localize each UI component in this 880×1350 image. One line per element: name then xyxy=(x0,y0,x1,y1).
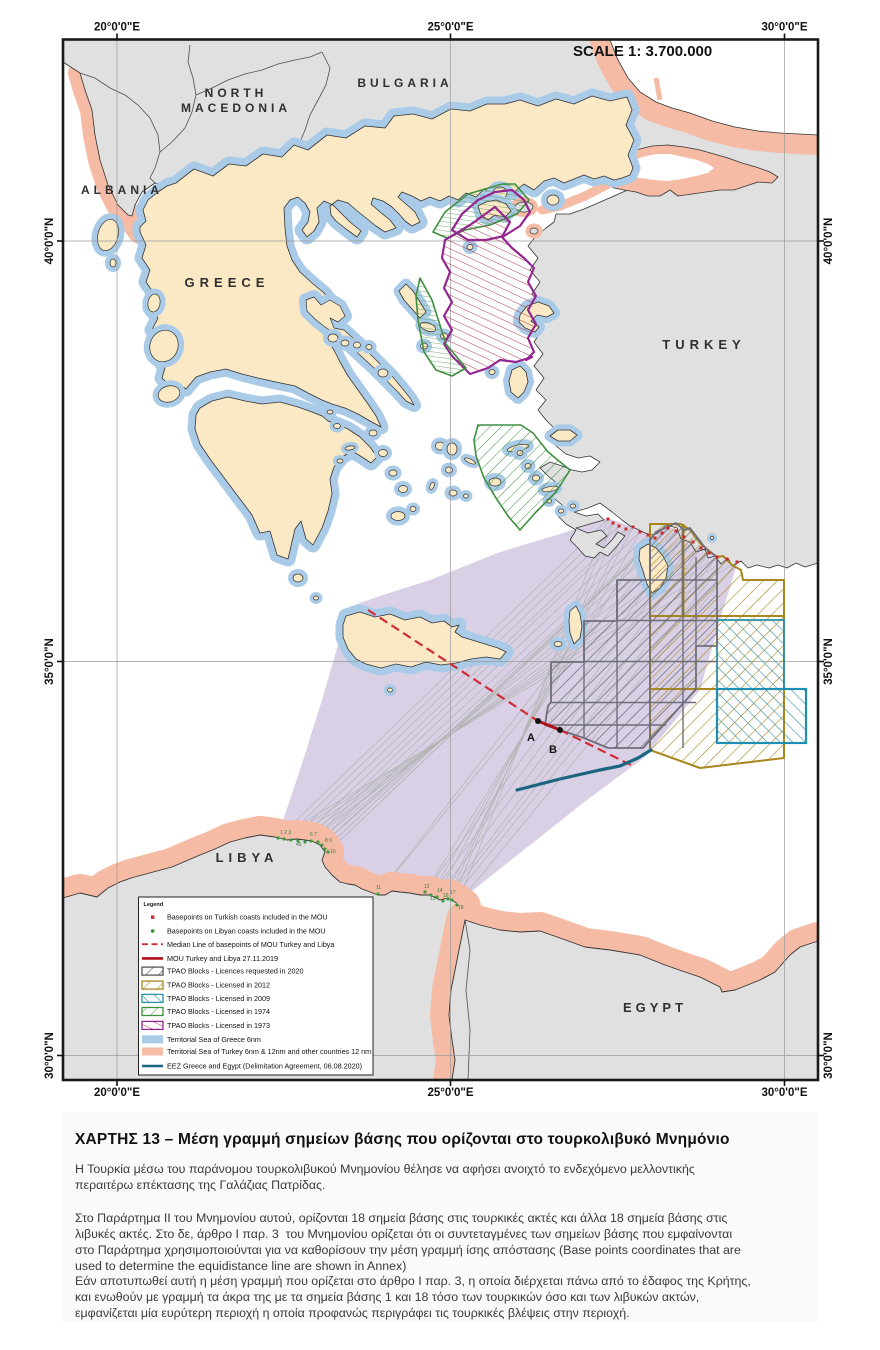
svg-text:20°0'0"E: 20°0'0"E xyxy=(94,1087,140,1099)
svg-text:GREECE: GREECE xyxy=(185,275,270,290)
svg-text:20°0'0"E: 20°0'0"E xyxy=(94,22,140,34)
svg-text:1 2 3: 1 2 3 xyxy=(280,830,291,836)
svg-text:25°0'0"E: 25°0'0"E xyxy=(427,1087,473,1099)
svg-text:30°0'0"E: 30°0'0"E xyxy=(761,1087,807,1099)
svg-text:TPAO Blocks - Licensed in 1973: TPAO Blocks - Licensed in 1973 xyxy=(167,1021,270,1030)
svg-text:SCALE 1: 3.700.000: SCALE 1: 3.700.000 xyxy=(573,43,712,60)
svg-text:14: 14 xyxy=(437,888,443,894)
svg-text:TPAO Blocks - Licensed in 2012: TPAO Blocks - Licensed in 2012 xyxy=(167,981,270,990)
svg-text:8 9: 8 9 xyxy=(325,838,332,844)
svg-text:Basepoints on Libyan coasts in: Basepoints on Libyan coasts included in … xyxy=(167,927,326,936)
svg-text:30°0'0"E: 30°0'0"E xyxy=(761,22,807,34)
svg-text:EEZ Greece and Egypt (Delimita: EEZ Greece and Egypt (Delimitation Agree… xyxy=(167,1062,362,1071)
svg-text:35°0'0"N: 35°0'0"N xyxy=(823,638,835,685)
svg-text:Median Line of basepoints of M: Median Line of basepoints of MOU Turkey … xyxy=(167,940,334,949)
svg-text:BULGARIA: BULGARIA xyxy=(357,76,452,90)
svg-text:MOU Turkey and Libya 27.11.201: MOU Turkey and Libya 27.11.2019 xyxy=(167,954,278,963)
svg-text:13: 13 xyxy=(430,896,436,902)
svg-text:LIBYA: LIBYA xyxy=(216,850,279,865)
svg-text:17: 17 xyxy=(450,890,456,896)
svg-text:TURKEY: TURKEY xyxy=(662,337,745,352)
svg-text:ALBANIA: ALBANIA xyxy=(81,183,163,197)
svg-text:40°0'0"N: 40°0'0"N xyxy=(823,218,835,265)
svg-text:30°0'0"N: 30°0'0"N xyxy=(823,1032,835,1079)
svg-text:EGYPT: EGYPT xyxy=(623,1000,687,1015)
svg-text:10: 10 xyxy=(330,849,336,855)
svg-text:Basepoints on Turkish coasts i: Basepoints on Turkish coasts included in… xyxy=(167,913,328,922)
svg-text:25°0'0"E: 25°0'0"E xyxy=(427,22,473,34)
svg-text:B: B xyxy=(549,744,557,756)
svg-text:18: 18 xyxy=(458,905,464,911)
svg-text:12: 12 xyxy=(424,884,430,890)
svg-text:35°0'0"N: 35°0'0"N xyxy=(44,638,56,685)
svg-text:TPAO Blocks - Licensed in 2009: TPAO Blocks - Licensed in 2009 xyxy=(167,994,270,1003)
svg-text:16: 16 xyxy=(443,893,449,899)
svg-text:Territorial Sea of Turkey 6nm: Territorial Sea of Turkey 6nm & 12nm and… xyxy=(167,1047,371,1056)
svg-text:11: 11 xyxy=(376,885,381,891)
svg-text:Territorial Sea of Greece 6nm: Territorial Sea of Greece 6nm xyxy=(167,1035,261,1044)
svg-text:30°0'0"N: 30°0'0"N xyxy=(44,1032,56,1079)
svg-text:TPAO Blocks - Licensed in 1974: TPAO Blocks - Licensed in 1974 xyxy=(167,1007,270,1016)
svg-text:A: A xyxy=(527,732,535,744)
svg-text:TPAO Blocks - Licences request: TPAO Blocks - Licences requested in 2020 xyxy=(167,967,304,976)
svg-text:NORTH: NORTH xyxy=(205,86,268,100)
svg-text:MACEDONIA: MACEDONIA xyxy=(181,101,291,115)
svg-text:45: 45 xyxy=(296,842,302,848)
svg-text:40°0'0"N: 40°0'0"N xyxy=(44,218,56,265)
svg-text:Legend: Legend xyxy=(144,902,164,908)
svg-text:6 7: 6 7 xyxy=(310,832,317,838)
